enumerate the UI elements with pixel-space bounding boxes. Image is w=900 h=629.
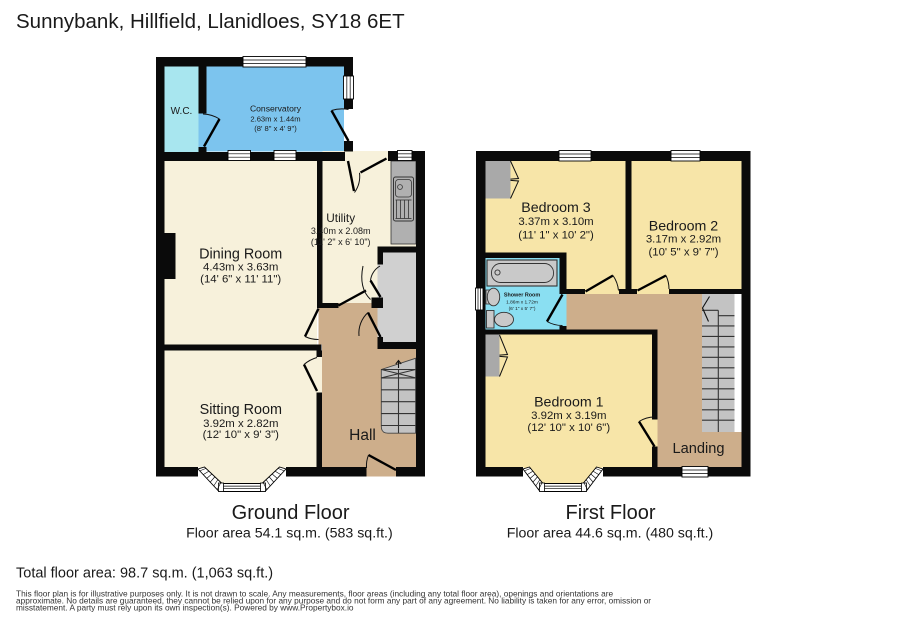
svg-text:(8' 8" x 4' 9"): (8' 8" x 4' 9"): [254, 124, 297, 133]
svg-text:3.17m x 2.92m: 3.17m x 2.92m: [646, 234, 721, 246]
svg-text:Bedroom 2: Bedroom 2: [649, 218, 719, 234]
svg-text:Sunnybank, Hillfield, Llanidlo: Sunnybank, Hillfield, Llanidloes, SY18 6…: [16, 10, 405, 33]
svg-text:Floor area 44.6 sq.m. (480 sq.: Floor area 44.6 sq.m. (480 sq.ft.): [507, 526, 714, 542]
svg-text:(6' 1" x 5' 7"): (6' 1" x 5' 7"): [509, 306, 536, 312]
svg-text:Sitting Room: Sitting Room: [200, 402, 282, 418]
svg-text:First Floor: First Floor: [566, 502, 656, 524]
svg-text:Landing: Landing: [673, 441, 725, 457]
svg-text:3.92m x 3.19m: 3.92m x 3.19m: [531, 410, 606, 422]
svg-text:3.37m x 3.10m: 3.37m x 3.10m: [518, 216, 593, 228]
svg-text:4.43m x 3.63m: 4.43m x 3.63m: [203, 261, 278, 273]
svg-text:Total floor area: 98.7 sq.m. (: Total floor area: 98.7 sq.m. (1,063 sq.f…: [16, 566, 273, 582]
svg-text:Shower Room: Shower Room: [504, 293, 540, 299]
svg-text:Floor area 54.1 sq.m. (583 sq.: Floor area 54.1 sq.m. (583 sq.ft.): [186, 526, 393, 542]
svg-text:(12' 10" x 9' 3"): (12' 10" x 9' 3"): [203, 429, 280, 441]
svg-text:Hall: Hall: [349, 427, 376, 444]
svg-text:1.86m x 1.72m: 1.86m x 1.72m: [506, 300, 538, 306]
svg-text:misstatement. A party must rel: misstatement. A party must rely upon its…: [16, 603, 354, 613]
svg-text:(12' 10" x 10' 6"): (12' 10" x 10' 6"): [527, 422, 610, 434]
svg-text:Dining Room: Dining Room: [199, 246, 282, 262]
svg-text:(10' 5" x 9' 7"): (10' 5" x 9' 7"): [648, 247, 718, 259]
svg-text:Conservatory: Conservatory: [250, 104, 302, 114]
svg-text:W.C.: W.C.: [171, 106, 193, 117]
svg-text:Bedroom 1: Bedroom 1: [534, 395, 604, 411]
svg-text:3.40m x 2.08m: 3.40m x 2.08m: [311, 226, 371, 236]
svg-text:(11' 1" x 10' 2"): (11' 1" x 10' 2"): [518, 229, 594, 241]
svg-text:(14' 6" x 11' 11"): (14' 6" x 11' 11"): [200, 274, 281, 286]
svg-text:Utility: Utility: [326, 211, 355, 225]
svg-text:Bedroom 3: Bedroom 3: [521, 200, 591, 216]
svg-text:(11' 2" x 6' 10"): (11' 2" x 6' 10"): [311, 237, 371, 247]
svg-text:2.63m x 1.44m: 2.63m x 1.44m: [250, 115, 300, 124]
svg-text:Ground Floor: Ground Floor: [232, 502, 350, 524]
